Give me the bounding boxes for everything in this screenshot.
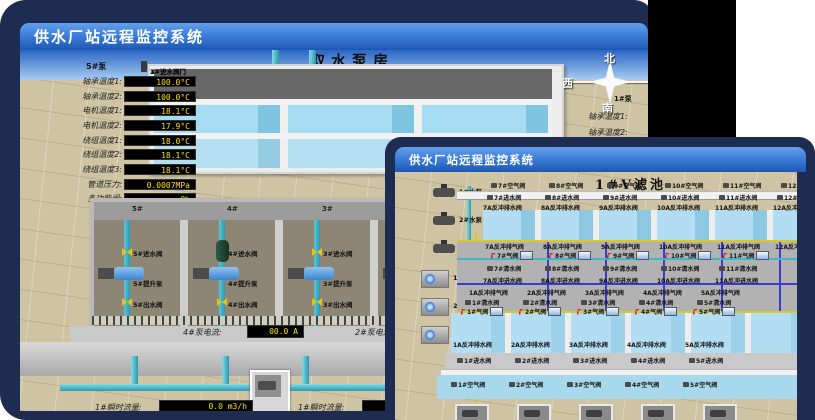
equipment-photo[interactable] <box>455 404 489 420</box>
pump-icon <box>433 216 455 225</box>
clean-water-valve[interactable]: 7#清水阀 <box>487 264 545 273</box>
lift-pump-label: 4#提升泵 <box>228 278 257 288</box>
air-valve[interactable]: 5#空气阀 <box>683 380 741 389</box>
gauge-value: 17.9°C <box>124 120 196 131</box>
valve-icon <box>545 266 551 271</box>
backwash-drain-valve[interactable]: 11A反冲排水阀 <box>715 203 773 212</box>
gauge-label: 电机温度2: <box>38 120 122 131</box>
backwash-drain-valve[interactable]: 7A反冲排水阀 <box>483 203 541 212</box>
air-valve[interactable]: 8#空气阀 <box>549 181 607 190</box>
pump-bay[interactable]: 4# 4#进水阀 4#提升泵 4#出水阀 <box>197 220 283 328</box>
backwash-drain-valve[interactable]: 8A反冲排水阀 <box>541 203 599 212</box>
clean-water-valve[interactable]: 5#清水阀 <box>697 298 755 307</box>
air-valve[interactable]: 3#空气阀 <box>567 380 625 389</box>
pump-icon <box>433 244 455 253</box>
backwash-inlet-valve[interactable]: 10A反冲进水阀 <box>657 276 715 285</box>
valve-icon <box>603 195 609 200</box>
gauge-label: 绕组温度2: <box>38 149 122 160</box>
bay-id: 3# <box>322 205 333 213</box>
gauge-label: 电机温度1: <box>38 105 122 116</box>
backwash-exhaust-valve[interactable]: 5A反冲排气阀 <box>701 288 759 297</box>
valve-icon <box>661 195 667 200</box>
alarm-flag-icon <box>635 309 640 315</box>
bay-id: 5# <box>132 205 143 213</box>
pool-channel-row1 <box>154 105 552 133</box>
air-valve[interactable]: 7#空气阀 <box>491 181 549 190</box>
fan-icon <box>421 298 449 316</box>
pump-icon <box>433 188 455 197</box>
valve-icon <box>487 195 493 200</box>
pump1-header: 1#泵 <box>614 94 632 104</box>
valve-icon <box>639 300 645 305</box>
clean-water-valve[interactable]: 3#清水阀 <box>581 298 639 307</box>
pump-bay[interactable]: 3# 3#进水阀 3#提升泵 3#出水阀 <box>292 220 378 328</box>
valve-icon <box>607 183 613 188</box>
window2-titlebar[interactable]: 供水厂站远程监控系统 <box>395 147 806 172</box>
pipe-stub <box>302 356 309 384</box>
clean-water-valve[interactable]: 11#清水阀 <box>719 264 777 273</box>
gas-valve-alarm[interactable]: 9#气阀 <box>607 251 665 260</box>
pump5-header: 5#泵 <box>86 61 106 72</box>
motor-icon <box>288 268 304 279</box>
clean-water-valve[interactable]: 8#清水阀 <box>545 264 603 273</box>
gauge-row: 电机温度2: 17.9°C <box>38 118 200 133</box>
gauge-row: 轴承温度2: 100.0°C <box>38 89 200 104</box>
gas-valve-alarm[interactable]: 7#气阀 <box>491 251 549 260</box>
gauge-label: 管道压力: <box>38 179 122 190</box>
gauge-value: 18.1°C <box>124 164 196 175</box>
backwash-drain-valve[interactable]: 2A反冲排水阀 <box>511 340 569 349</box>
gauge-label: 轴承温度1: <box>588 111 628 122</box>
valve-icon <box>719 266 725 271</box>
inlet-valve[interactable]: 5#进水阀 <box>689 356 747 365</box>
backwash-inlet-valve[interactable]: 11A反冲进水阀 <box>715 276 773 285</box>
gauge-row: 轴承温度1: 100.0°C <box>38 74 200 89</box>
backwash-drain-valve[interactable]: 12A反冲排水阀 <box>773 203 797 212</box>
valve-icon <box>141 61 147 72</box>
valve-icon <box>465 300 471 305</box>
valve-icon <box>697 300 703 305</box>
air-valve[interactable]: 9#空气阀 <box>607 181 665 190</box>
gas-valve-alarm[interactable]: 10#气阀 <box>665 251 723 260</box>
inlet-valve[interactable]: 10#进水阀 <box>661 193 719 202</box>
gauge-label: 绕组温度3: <box>38 164 122 175</box>
equipment-photo[interactable] <box>703 404 737 420</box>
valve-icon <box>665 183 671 188</box>
backwash-exhaust-valve[interactable]: 1A反冲排气阀 <box>469 288 527 297</box>
outlet-valve-label: 5#出水阀 <box>133 299 162 309</box>
backwash-drain-valve[interactable]: 5A反冲排水阀 <box>685 340 743 349</box>
black-backdrop <box>648 0 736 137</box>
gauge-row: 管道压力: 0.0007MPa <box>38 177 200 192</box>
inlet-valve[interactable]: 12#进水阀 <box>777 193 797 202</box>
air-valve[interactable]: 11#空气阀 <box>723 181 781 190</box>
alarm-flag-icon <box>491 253 496 259</box>
air-valve[interactable]: 2#空气阀 <box>509 380 567 389</box>
valve-icon <box>451 382 457 387</box>
backwash-exhaust-valve[interactable]: 12A反冲排气阀 <box>775 242 797 251</box>
compass-west: 西 <box>562 75 573 91</box>
gas-valve-alarm[interactable]: 8#气阀 <box>549 251 607 260</box>
backwash-exhaust-valve[interactable]: 2A反冲排气阀 <box>527 288 585 297</box>
valve-icon <box>581 300 587 305</box>
gas-valve-alarm[interactable]: 5#气阀 <box>693 307 751 316</box>
gauge-row: 电机温度1: 18.1°C <box>38 103 200 118</box>
motor-icon <box>193 268 209 279</box>
window1-titlebar[interactable]: 供水厂站远程监控系统 <box>20 23 648 50</box>
inlet-valve[interactable]: 2#进水阀 <box>515 356 573 365</box>
inlet-valve-label: 3#进水阀 <box>323 248 352 258</box>
gauge-value: 18.1°C <box>124 105 196 116</box>
air-valve[interactable]: 12#空气阀 <box>781 181 797 190</box>
valve-icon <box>723 183 729 188</box>
clean-water-valve[interactable]: 4#清水阀 <box>639 298 697 307</box>
gauge-row: 绕组温度3: 18.1°C <box>38 162 200 177</box>
alarm-flag-icon <box>519 309 524 315</box>
air-valve[interactable]: 4#空气阀 <box>625 380 683 389</box>
compass-north: 北 <box>604 50 615 66</box>
backwash-exhaust-valve[interactable]: 10A反冲排气阀 <box>659 242 717 251</box>
window2-title: 供水厂站远程监控系统 <box>409 152 534 168</box>
equipment-photo[interactable] <box>579 404 613 420</box>
backwash-drain-valve[interactable]: 1A反冲排水阀 <box>453 340 511 349</box>
pipe-stub <box>222 356 229 384</box>
pipe-stub <box>131 356 138 384</box>
inlet-valve-label: 5#进水阀 <box>133 248 162 258</box>
pump4-current-value: 00.0 A <box>247 325 304 338</box>
pool-back-wall <box>154 69 552 99</box>
valve-icon <box>631 358 637 363</box>
gauge-label: 绕组温度1: <box>38 135 122 146</box>
valve-icon <box>487 266 493 271</box>
backwash-exhaust-valve[interactable]: 4A反冲排气阀 <box>643 288 701 297</box>
gas-valve-alarm[interactable]: 2#气阀 <box>519 307 577 316</box>
lift-pump-label: 3#提升泵 <box>323 278 352 288</box>
fan-icon <box>421 326 449 344</box>
bay-id: 4# <box>227 205 238 213</box>
gauge-row: 绕组温度1: 18.0°C <box>38 133 200 148</box>
inlet-valve[interactable]: 11#进水阀 <box>719 193 777 202</box>
gas-valve-alarm[interactable]: 1#气阀 <box>461 307 519 316</box>
clean-water-valve[interactable]: 10#清水阀 <box>661 264 719 273</box>
inlet-valve[interactable]: 4#进水阀 <box>631 356 689 365</box>
upper-pools <box>483 210 797 240</box>
valve-icon <box>683 382 689 387</box>
valve-icon <box>689 358 695 363</box>
inlet-valve[interactable]: 7#进水阀 <box>487 193 545 202</box>
inlet-valve[interactable]: 8#进水阀 <box>545 193 603 202</box>
alarm-flag-icon <box>461 309 466 315</box>
valve-icon <box>523 300 529 305</box>
gauge-value: 0.0007MPa <box>124 179 196 190</box>
alarm-flag-icon <box>665 253 670 259</box>
backwash-drain-valve[interactable]: 4A反冲排水阀 <box>627 340 685 349</box>
alarm-flag-icon <box>693 309 698 315</box>
backwash-inlet-valve[interactable]: 8A反冲进水阀 <box>541 276 599 285</box>
backwash-drain-valve[interactable]: 10A反冲排水阀 <box>657 203 715 212</box>
flow1-value: 0.0 m3/h <box>159 400 253 411</box>
equipment-photo[interactable] <box>641 404 675 420</box>
window2-canvas: 1#V滤池 1#水泵 2#水泵 3#水泵 1#风机 2#风机 3#风机 7#空气… <box>395 172 797 420</box>
valve-icon <box>625 382 631 387</box>
dosing-tank <box>216 240 229 262</box>
valve-icon <box>781 183 787 188</box>
air-valve[interactable]: 1#空气阀 <box>451 380 509 389</box>
gauge-label: 轴承温度1: <box>38 76 122 87</box>
backwash-exhaust-valve[interactable]: 7A反冲排气阀 <box>485 242 543 251</box>
gauge-value: 18.1°C <box>124 149 196 160</box>
outlet-valve-label: 4#出水阀 <box>228 299 257 309</box>
gauge-value: 100.0°C <box>124 76 196 87</box>
backwash-drain-valve[interactable]: 9A反冲排水阀 <box>599 203 657 212</box>
alarm-flag-icon <box>549 253 554 259</box>
lift-pump-label: 5#提升泵 <box>133 278 162 288</box>
gauge-row: 绕组温度2: 18.1°C <box>38 147 200 162</box>
air-valve[interactable]: 10#空气阀 <box>665 181 723 190</box>
valve-icon <box>457 358 463 363</box>
valve-icon <box>491 183 497 188</box>
valve-icon <box>515 358 521 363</box>
alarm-flag-icon <box>577 309 582 315</box>
valve-icon <box>549 183 555 188</box>
clean-water-valve[interactable]: 2#清水阀 <box>523 298 581 307</box>
inlet-valve[interactable]: 3#进水阀 <box>573 356 631 365</box>
pump4-current-label: 4#泵电流: <box>183 327 222 338</box>
outlet-valve-label: 3#出水阀 <box>323 299 352 309</box>
gas-valve-alarm[interactable]: 3#气阀 <box>577 307 635 316</box>
flow1-label: 1#瞬时流量: <box>95 402 142 411</box>
inlet-valve[interactable]: 1#进水阀 <box>457 356 515 365</box>
fan-icon <box>421 270 449 288</box>
alarm-flag-icon <box>607 253 612 259</box>
clean-water-valve[interactable]: 9#清水阀 <box>603 264 661 273</box>
backwash-exhaust-valve[interactable]: 9A反冲排气阀 <box>601 242 659 251</box>
backwash-inlet-valve[interactable]: 9A反冲进水阀 <box>599 276 657 285</box>
window1-title: 供水厂站远程监控系统 <box>34 26 204 47</box>
gas-valve-alarm[interactable]: 4#气阀 <box>635 307 693 316</box>
clean-water-valve[interactable]: 1#清水阀 <box>465 298 523 307</box>
backwash-inlet-valve[interactable]: 7A反冲进水阀 <box>483 276 541 285</box>
backwash-exhaust-valve[interactable]: 11A反冲排气阀 <box>717 242 775 251</box>
valve-icon <box>509 382 515 387</box>
gauge-value: 100.0°C <box>124 91 196 102</box>
backwash-exhaust-valve[interactable]: 3A反冲排气阀 <box>585 288 643 297</box>
inlet-valve[interactable]: 9#进水阀 <box>603 193 661 202</box>
equipment-photo-strip <box>455 404 765 420</box>
valve-icon <box>603 266 609 271</box>
pump-label: 2#水泵 <box>459 214 482 224</box>
backwash-exhaust-valve[interactable]: 8A反冲排气阀 <box>543 242 601 251</box>
pump-bay[interactable]: 5# 5#进水阀 5#提升泵 5#出水阀 <box>102 220 188 328</box>
alarm-flag-icon <box>723 253 728 259</box>
flowmeter-photo-button[interactable] <box>250 370 290 411</box>
valve-icon <box>545 195 551 200</box>
flow2-label: 1#瞬时流量: <box>298 402 345 411</box>
gauge-label: 轴承温度2: <box>38 91 122 102</box>
valve-icon <box>573 358 579 363</box>
inlet-valve-label: 4#进水阀 <box>228 248 257 258</box>
gauge-value: 18.0°C <box>124 135 196 146</box>
valve-icon <box>777 195 783 200</box>
valve-icon <box>661 266 667 271</box>
equipment-photo[interactable] <box>517 404 551 420</box>
gas-valve-alarm[interactable]: 11#气阀 <box>723 251 781 260</box>
backwash-drain-valve[interactable]: 3A反冲排水阀 <box>569 340 627 349</box>
valve-icon <box>567 382 573 387</box>
motor-icon <box>98 268 114 279</box>
valve-icon <box>719 195 725 200</box>
